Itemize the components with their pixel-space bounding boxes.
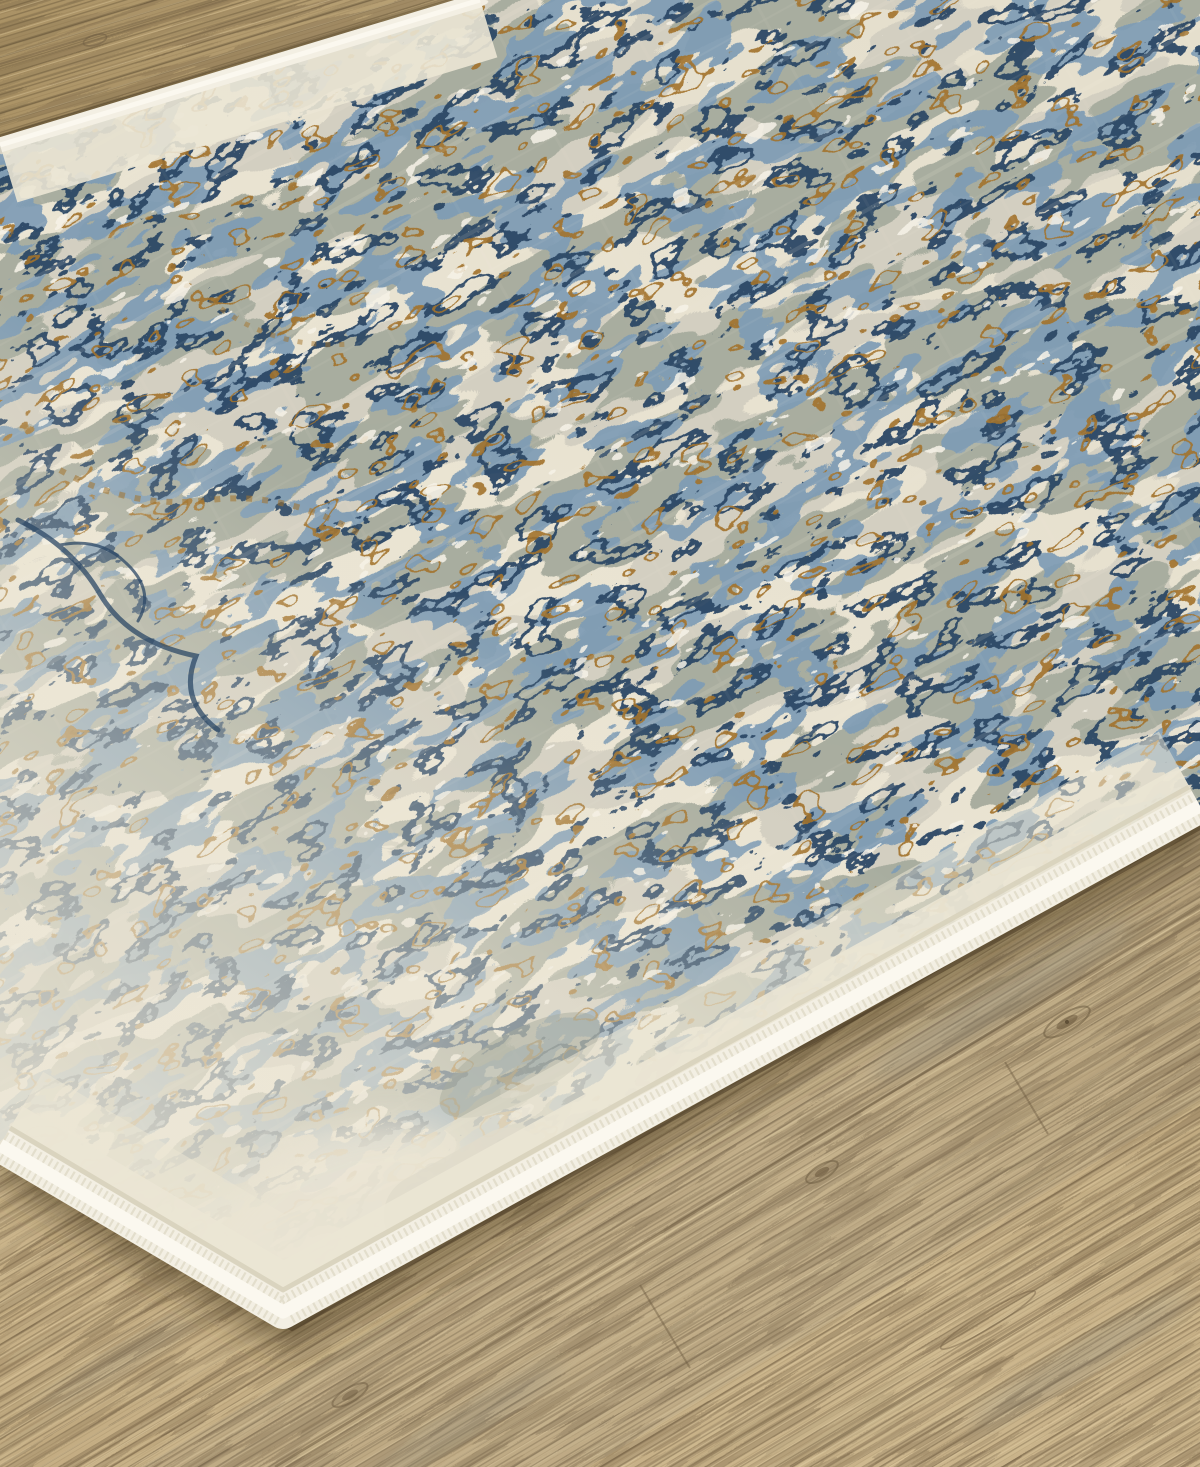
- rug-product-photo: [0, 0, 1200, 1467]
- photo-canvas: [0, 0, 1200, 1467]
